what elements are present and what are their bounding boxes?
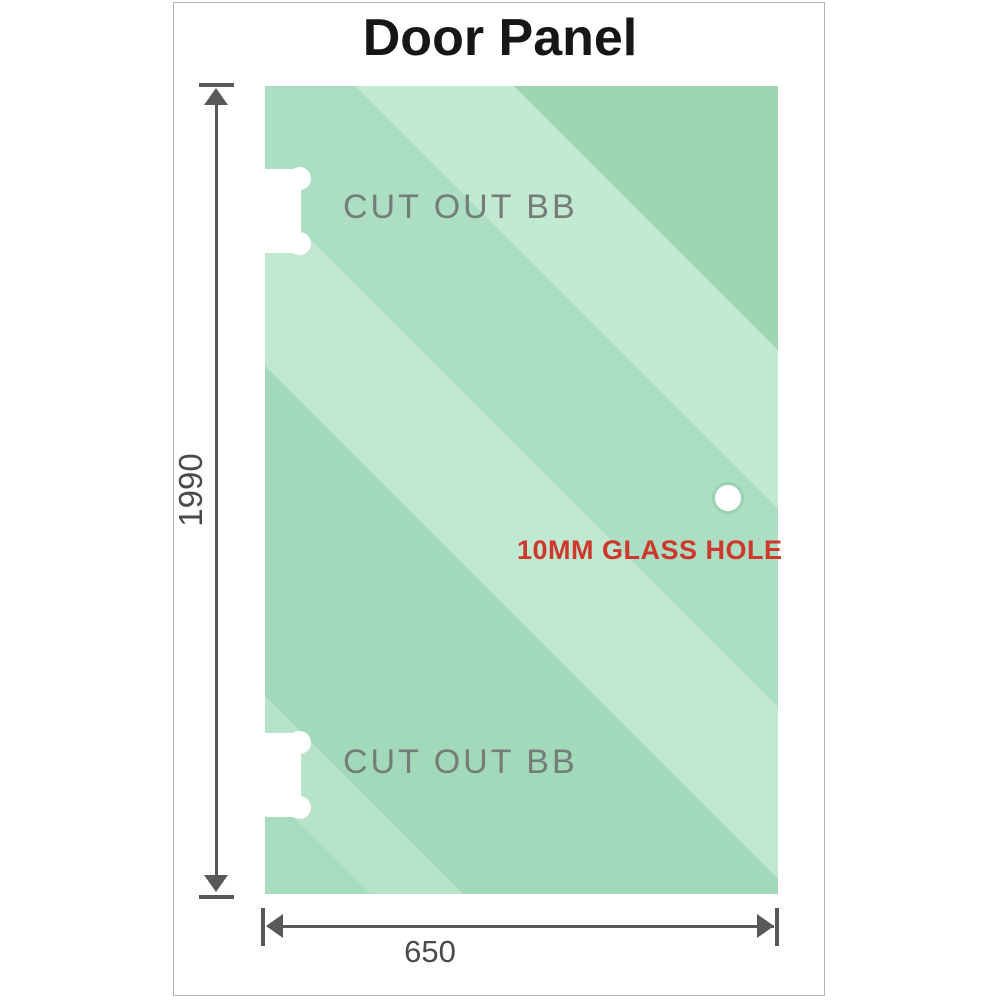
hinge-cutout-bottom xyxy=(257,733,301,817)
hinge-cutout-top xyxy=(257,169,301,253)
width-dimension-line xyxy=(268,925,774,928)
dimension-tick-top xyxy=(199,83,234,87)
cutout-bottom-label: CUT OUT BB xyxy=(343,743,578,782)
height-dimension-value: 1990 xyxy=(172,430,208,550)
glass-hole-icon xyxy=(715,485,741,511)
width-dimension-value: 650 xyxy=(370,934,490,970)
height-dimension-line xyxy=(215,92,218,888)
cutout-lobe-icon xyxy=(288,167,311,190)
glass-panel: CUT OUT BB CUT OUT BB 10MM GLASS HOLE xyxy=(265,86,778,894)
arrowhead-right-icon xyxy=(757,914,774,938)
cutout-top-label: CUT OUT BB xyxy=(343,188,578,227)
dimension-tick-bottom xyxy=(199,895,234,899)
arrowhead-down-icon xyxy=(204,875,228,892)
cutout-lobe-icon xyxy=(288,796,311,819)
dimension-tick-right xyxy=(775,908,779,946)
cutout-lobe-icon xyxy=(288,232,311,255)
dimension-tick-left xyxy=(261,908,265,946)
glass-hole-label: 10MM GLASS HOLE xyxy=(517,535,783,566)
door-panel-diagram: Door Panel CUT OUT BB CUT OUT BB 10MM GL… xyxy=(0,0,1000,1000)
cutout-lobe-icon xyxy=(288,731,311,754)
page-title: Door Panel xyxy=(173,8,827,68)
